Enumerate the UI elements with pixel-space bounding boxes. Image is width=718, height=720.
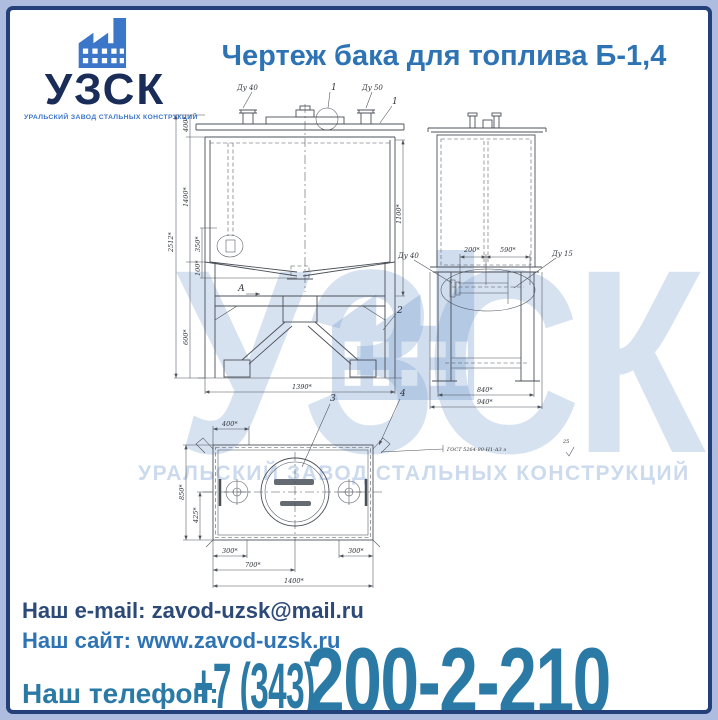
side-view: 200* 590* Ду 40 Ду 15 840* 940*: [397, 113, 573, 409]
phone-number: 200-2-210: [306, 642, 610, 714]
plan-callout-3: 3: [330, 394, 336, 404]
front-dim-hopper: 100*: [194, 260, 202, 276]
front-section-label: А: [237, 284, 245, 294]
front-dim-width: 1390*: [292, 383, 313, 391]
content-frame: УЗСК УРАЛЬСКИЙ ЗАВОД СТАЛЬНЫХ КОНСТРУКЦИ…: [6, 6, 712, 714]
side-du40-label: Ду 40: [397, 252, 419, 260]
factory-icon: [78, 18, 132, 68]
plan-dim-700: 700*: [245, 561, 261, 569]
email-value: zavod-uzsk@mail.ru: [152, 598, 364, 623]
plan-callout-4: 4: [399, 389, 406, 399]
page-title: Чертеж бака для топлива Б-1,4: [182, 40, 706, 73]
side-du15-label: Ду 15: [551, 250, 573, 258]
plan-dim-300-left: 300*: [222, 547, 238, 555]
plan-view: 400* 3 4 ГОСТ 5264-80-Н1-Δ3 э 25 850* 42…: [178, 389, 574, 588]
site-label: Наш сайт:: [22, 628, 131, 653]
front-dim-right: 1100*: [395, 203, 403, 224]
front-dim-overall: 2512*: [167, 231, 175, 253]
email-label: Наш e-mail:: [22, 598, 145, 623]
plan-weld-num: 25: [562, 439, 569, 445]
side-dim-840: 840*: [477, 386, 493, 394]
front-dim-frame: 600*: [182, 329, 190, 345]
plan-dim-425: 425*: [192, 507, 200, 524]
front-dim-top: 400*: [182, 116, 190, 133]
front-callout-2: 2: [396, 306, 403, 316]
front-callout-1-right: 1: [392, 97, 398, 107]
side-dim-200: 200*: [463, 246, 480, 254]
plan-dim-1400: 1400*: [284, 577, 305, 585]
front-dim-ellipse: 350*: [194, 236, 202, 252]
front-dim-body: 1400*: [182, 186, 190, 207]
front-callout-1-top: 1: [331, 83, 337, 93]
front-nozzle-right-label: Ду 50: [361, 84, 383, 92]
phone-label: Наш телефон:: [22, 678, 219, 710]
page: УЗСК УРАЛЬСКИЙ ЗАВОД СТАЛЬНЫХ КОНСТРУКЦИ…: [0, 0, 718, 720]
front-nozzle-left-label: Ду 40: [236, 84, 258, 92]
side-dim-590: 590*: [500, 246, 516, 254]
email-line: Наш e-mail: zavod-uzsk@mail.ru: [22, 598, 364, 624]
front-view: 1 1: [167, 83, 405, 394]
plan-dim-850: 850*: [178, 484, 186, 500]
technical-drawing: 1 1: [160, 82, 712, 594]
plan-weld-note: ГОСТ 5264-80-Н1-Δ3 э: [446, 447, 506, 453]
side-dim-940: 940*: [477, 398, 493, 406]
plan-dim-300-right: 300*: [348, 547, 364, 555]
phone-prefix: +7 (343): [194, 660, 315, 712]
plan-dim-400: 400*: [221, 420, 238, 428]
